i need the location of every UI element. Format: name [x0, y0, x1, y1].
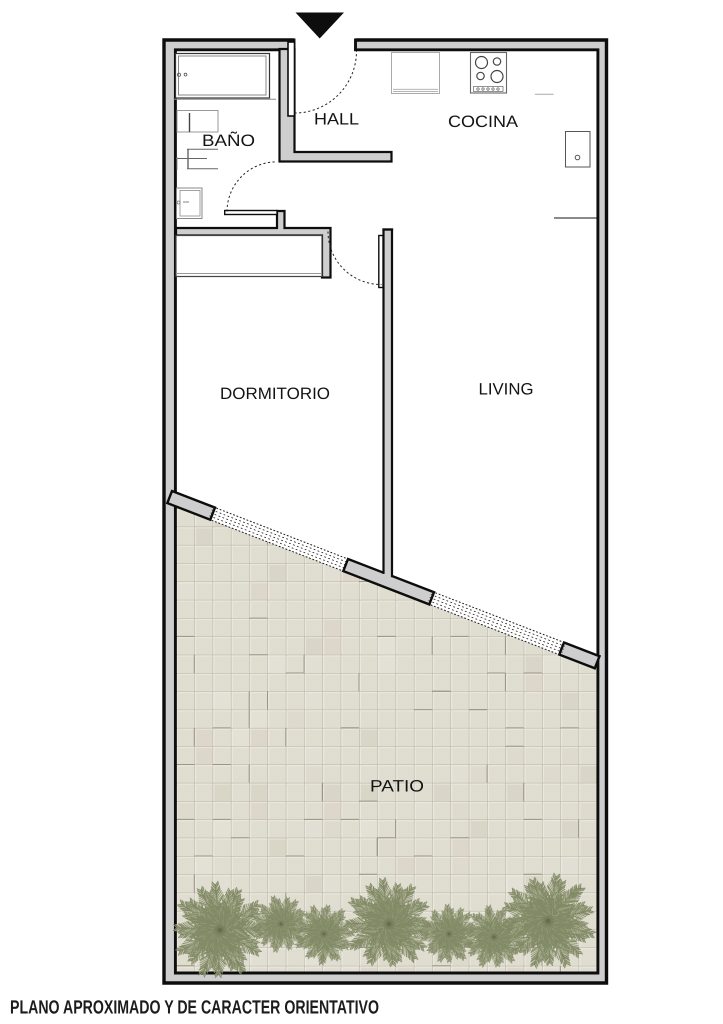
svg-text:HALL: HALL	[314, 111, 359, 129]
svg-text:PLANO APROXIMADO Y DE CARACTER: PLANO APROXIMADO Y DE CARACTER ORIENTATI…	[10, 998, 379, 1019]
svg-text:DORMITORIO: DORMITORIO	[220, 385, 330, 403]
svg-text:PATIO: PATIO	[370, 778, 424, 796]
svg-text:BAÑO: BAÑO	[202, 131, 255, 150]
svg-text:LIVING: LIVING	[479, 381, 534, 399]
svg-text:COCINA: COCINA	[448, 113, 518, 131]
